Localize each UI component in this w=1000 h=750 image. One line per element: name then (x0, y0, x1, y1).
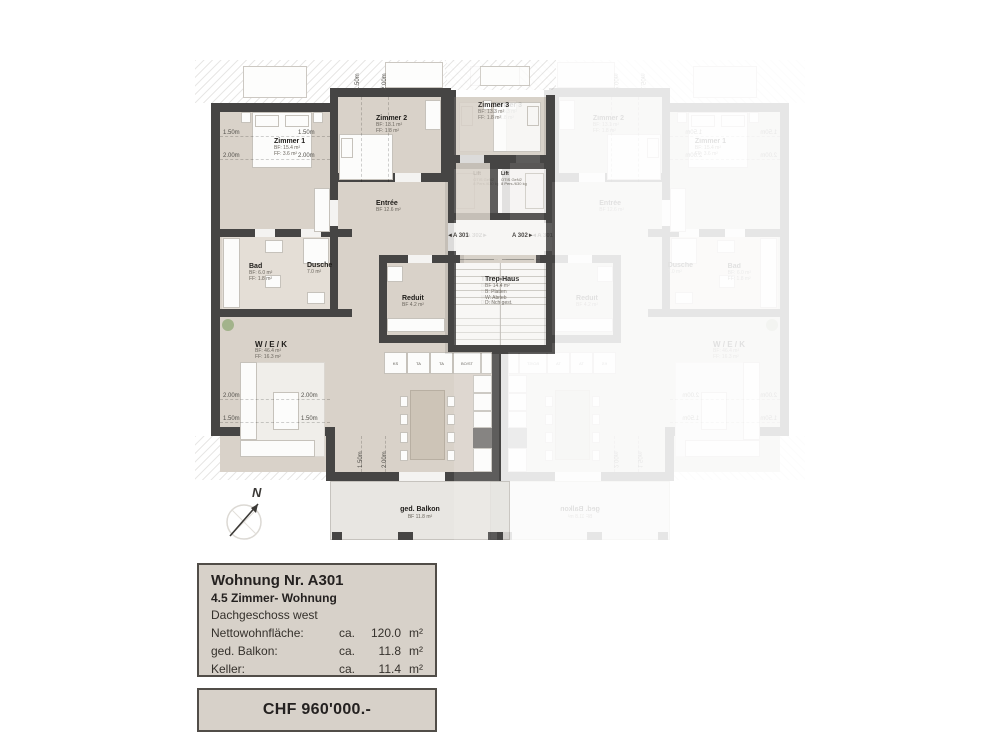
slope-line (670, 399, 780, 400)
nightstand (241, 112, 251, 123)
sink (717, 240, 735, 253)
slope-line (611, 97, 612, 182)
door-opening (255, 229, 275, 237)
roof-hatch (670, 436, 805, 480)
dim-label: 1.50m (639, 73, 645, 90)
kitchen-cabinet: KS (593, 352, 616, 374)
shelf (555, 318, 613, 332)
chair (400, 450, 408, 461)
balcony-label: ged. Balkon BF 11.8 m² (550, 506, 610, 520)
dining-table (555, 390, 590, 460)
kitchen-cabinet-label: KS (602, 361, 607, 366)
sink (307, 292, 325, 304)
dormer-window (480, 66, 530, 86)
room-label-reduit: Reduit BF 4.2 m² (402, 295, 424, 309)
wall (490, 213, 547, 220)
room-label-zimmer2: Zimmer 2 BF: 13.1 m² FF: 1.8 m² (376, 115, 407, 135)
dormer-window (693, 66, 757, 98)
room-name: Dusche (668, 262, 693, 270)
room-area: BF: 46.4 m² (713, 349, 745, 355)
unit-marker-a302: A 302► (512, 233, 534, 239)
sink (265, 240, 283, 253)
door-opening (579, 173, 605, 182)
apartment-a301-floorplan: KS TA TA BO/ST (195, 60, 556, 545)
info-unit: m² (401, 624, 423, 642)
kitchen-cabinet (473, 448, 492, 472)
wall (546, 95, 555, 354)
entry-threshold (460, 259, 494, 260)
slope-line (670, 422, 780, 423)
wardrobe (314, 188, 330, 232)
kitchen-cabinet: TA (430, 352, 453, 374)
wall (211, 237, 220, 317)
info-row: Nettowohnfläche: ca. 120.0 m² (211, 624, 423, 642)
room-label-trephaus: Trep-Haus BF 14.4 m² B: Platten W: Abrie… (485, 276, 519, 307)
nightstand (749, 112, 759, 123)
wall (379, 335, 448, 343)
room-area: BF 12.6 m² (376, 208, 401, 214)
chair (447, 450, 455, 461)
dim-label: 1.50m (298, 130, 315, 136)
bathtub (223, 238, 240, 308)
wall (490, 162, 547, 169)
dim-label: 1.50m (223, 416, 240, 422)
wall (552, 255, 621, 263)
room-area: BF 4.2 m² (576, 303, 598, 309)
room-label-dusche: Dusche 7.0 m² (668, 262, 693, 276)
room-area: FF: 1.8 m² (249, 277, 272, 283)
room-label-entree: Entrée BF 12.6 m² (599, 200, 624, 214)
door-opening (662, 200, 670, 226)
door-opening (460, 155, 484, 163)
pillow (341, 138, 353, 158)
room-area: BF: 6.0 m² (728, 271, 751, 277)
info-ca: ca. (339, 660, 363, 678)
kitchen-cabinet (473, 393, 492, 411)
info-row: Keller: ca. 11.4 m² (211, 660, 423, 678)
room-area: BF: 13.1 m² (593, 123, 624, 129)
room-label-reduit: Reduit BF 4.2 m² (576, 295, 598, 309)
wall (211, 103, 220, 237)
slope-line (388, 97, 389, 182)
kitchen-cabinet-label: TA (439, 361, 444, 366)
entry-threshold (502, 259, 534, 260)
sofa (743, 362, 760, 440)
room-label-entree: Entrée BF 12.6 m² (376, 200, 401, 214)
info-value: 11.4 (363, 660, 401, 678)
dim-label: 1.50m (682, 416, 699, 422)
room-label-dusche: Dusche 7.0 m² (307, 262, 332, 276)
bed (688, 112, 748, 168)
floor-bath (670, 237, 778, 309)
room-area: 7.0 m² (668, 270, 693, 276)
wall (213, 103, 334, 112)
balcony-pillar (488, 532, 503, 540)
nightstand (313, 112, 323, 123)
room-area: BF 11.8 m² (390, 514, 450, 520)
chair (447, 396, 455, 407)
room-area: FF: 3.6 m² (274, 152, 305, 158)
room-area: FF: 1.8 m² (376, 129, 407, 135)
kitchen-cabinet-label: TA (556, 361, 561, 366)
dim-label: 2.00m (612, 73, 618, 90)
lift-cab-inner (525, 173, 544, 209)
dim-label: 1.50m (760, 130, 777, 136)
price-text: CHF 960'000.- (263, 701, 371, 719)
room-label-wek: W / E / K BF: 46.4 m² FF: 16.3 m² (255, 340, 287, 361)
dim-label: 2.00m (382, 451, 388, 468)
price-box: CHF 960'000.- (197, 688, 437, 732)
wall (448, 90, 456, 354)
pillow (285, 115, 309, 127)
door-opening (568, 255, 592, 263)
toilet (719, 275, 735, 288)
wall (666, 103, 787, 112)
door-opening (408, 255, 432, 263)
kitchen-cabinet: BO/ST (453, 352, 481, 374)
dim-label: 1.50m (358, 451, 364, 468)
compass-n-label: N (252, 485, 262, 500)
dim-label: 2.00m (223, 393, 240, 399)
dim-label: 2.00m (382, 73, 388, 90)
pillow (527, 106, 539, 126)
compass: N (220, 482, 272, 546)
kitchen-cabinet-label: TA (579, 361, 584, 366)
info-ca: ca. (339, 642, 363, 660)
door-opening (395, 173, 421, 182)
shower (303, 238, 329, 264)
kitchen-appliance-dark (473, 428, 492, 448)
wall (648, 229, 789, 237)
coffee-table (273, 392, 299, 430)
wall (330, 88, 451, 97)
dining-table (410, 390, 445, 460)
room-name: Zimmer 1 (695, 138, 726, 146)
room-area: BF: 15.4 m² (695, 146, 726, 152)
room-name: Zimmer 2 (593, 115, 624, 123)
wall (549, 173, 662, 182)
room-name: Entrée (599, 200, 624, 208)
balcony-pillar (398, 532, 413, 540)
room-name: ged. Balkon (550, 506, 610, 514)
room-name: Bad (728, 263, 751, 271)
chair (447, 414, 455, 425)
appliance (387, 266, 403, 282)
sofa (685, 440, 760, 457)
room-area: FF: 1.8 m² (478, 116, 509, 122)
rug (675, 362, 760, 457)
room-label-bad: Bad BF: 6.0 m² FF: 1.8 m² (728, 263, 751, 283)
room-label-wek: W / E / K BF: 46.4 m² FF: 16.3 m² (713, 340, 745, 361)
wall (379, 255, 387, 343)
kitchen-cabinet (473, 411, 492, 428)
balcony-pillar (587, 532, 602, 540)
balcony-label: ged. Balkon BF 11.8 m² (390, 506, 450, 520)
sink (675, 292, 693, 304)
dim-label: 2.00m (685, 153, 702, 159)
chair (400, 396, 408, 407)
room-area: FF: 16.3 m² (713, 355, 745, 361)
slope-line (220, 399, 330, 400)
room-area: BF 4.2 m² (402, 303, 424, 309)
shelf (387, 318, 445, 332)
dim-label: 2.00m (612, 451, 618, 468)
room-area: FF: 1.8 m² (593, 129, 624, 135)
chair (447, 432, 455, 443)
dim-label: 2.00m (760, 393, 777, 399)
wall (552, 335, 621, 343)
dim-label: 1.50m (685, 130, 702, 136)
room-area: FF: 3.6 m² (695, 152, 726, 158)
dormer-window (557, 62, 615, 88)
dim-label: 2.00m (760, 153, 777, 159)
door-opening (330, 200, 338, 226)
bathtub (760, 238, 777, 308)
slope-line (220, 422, 330, 423)
room-label-lift: Lift OTIS GeN2 8 Pers./630 kg (501, 172, 527, 187)
slope-line (638, 436, 639, 472)
wall (440, 255, 460, 263)
slope-line (638, 97, 639, 182)
wall (780, 103, 789, 237)
wardrobe (425, 100, 441, 130)
room-label-zimmer1: Zimmer 1 BF: 15.4 m² FF: 3.6 m² (695, 138, 726, 158)
room-name: Reduit (576, 295, 598, 303)
info-label: ged. Balkon: (211, 642, 339, 660)
info-label: Keller: (211, 660, 339, 678)
wall (441, 97, 448, 182)
pillow (721, 115, 745, 127)
chair (592, 396, 600, 407)
wall (780, 317, 789, 436)
chair (400, 432, 408, 443)
room-name: ged. Balkon (390, 506, 450, 514)
dim-label: 1.50m (636, 451, 642, 468)
slope-line (614, 436, 615, 472)
info-unit: m² (401, 642, 423, 660)
stair-treads (456, 312, 546, 345)
coffee-table (701, 392, 727, 430)
pillow (691, 115, 715, 127)
slope-line (220, 159, 330, 160)
sofa (240, 440, 315, 457)
room-note: D: Nch gest. (485, 301, 519, 307)
sofa (240, 362, 257, 440)
shower (671, 238, 697, 264)
room-label-bad: Bad BF: 6.0 m² FF: 1.8 m² (249, 263, 272, 283)
plant (766, 319, 778, 331)
apartment-floor: Dachgeschoss west (211, 606, 423, 624)
dim-label: 2.00m (682, 393, 699, 399)
wall (648, 309, 789, 317)
room-area: FF: 1.8 m² (728, 277, 751, 283)
wall (211, 317, 220, 436)
balcony-door (555, 472, 601, 482)
kitchen-cabinet (473, 375, 492, 393)
chair (592, 432, 600, 443)
kitchen-cabinet-label: BO/ST (461, 361, 473, 366)
slope-line (670, 159, 780, 160)
kitchen-cabinet: KS (384, 352, 407, 374)
apartment-subtitle: 4.5 Zimmer- Wohnung (211, 590, 423, 606)
dormer-window (385, 62, 443, 88)
room-label-zimmer1: Zimmer 1 BF: 15.4 m² FF: 3.6 m² (274, 138, 305, 158)
room-area: FF: 16.3 m² (255, 355, 287, 361)
wardrobe (670, 188, 686, 232)
chair (400, 414, 408, 425)
room-label-zimmer2: Zimmer 2 BF: 13.1 m² FF: 1.8 m² (593, 115, 624, 135)
wall (662, 229, 670, 317)
info-unit: m² (401, 660, 423, 678)
room-area: BF 12.6 m² (599, 208, 624, 214)
page: KS TA TA BO/ST (0, 0, 1000, 750)
kitchen-cabinet-label: KS (393, 361, 398, 366)
kitchen-cabinet (481, 352, 492, 374)
info-value: 120.0 (363, 624, 401, 642)
balcony-pillar (658, 532, 668, 540)
dim-label: 2.00m (301, 393, 318, 399)
kitchen-cabinet-label: TA (416, 361, 421, 366)
lift-spec: 8 Pers./630 kg (501, 182, 527, 187)
wall (667, 427, 789, 436)
wall (613, 255, 621, 343)
nightstand (677, 112, 687, 123)
dormer-window (243, 66, 307, 98)
dim-label: 1.50m (760, 416, 777, 422)
appliance (597, 266, 613, 282)
kitchen-cabinet: TA (407, 352, 430, 374)
info-label: Nettowohnfläche: (211, 624, 339, 642)
roof-hatch (553, 60, 805, 103)
info-row: ged. Balkon: ca. 11.8 m² (211, 642, 423, 660)
chair (592, 450, 600, 461)
wall (549, 88, 670, 97)
apartment-title: Wohnung Nr. A301 (211, 571, 423, 590)
pillow (647, 138, 659, 158)
plant (222, 319, 234, 331)
room-name: W / E / K (713, 340, 745, 349)
dim-label: 1.50m (355, 73, 361, 90)
room-label-zimmer3: Zimmer 3 BF: 13.3 m² FF: 1.8 m² (478, 102, 509, 122)
room-area: BF 11.8 m² (550, 514, 610, 520)
bed (607, 134, 661, 180)
door-opening (679, 229, 699, 237)
balcony-pillar (332, 532, 342, 540)
wall (492, 352, 501, 481)
dim-label: 2.00m (223, 153, 240, 159)
slope-line (220, 136, 330, 137)
wall (490, 162, 498, 220)
dim-label: 1.50m (301, 416, 318, 422)
chair (592, 414, 600, 425)
unit-marker-a301: ◄A 301 (447, 233, 469, 239)
apartment-info-box: Wohnung Nr. A301 4.5 Zimmer- Wohnung Dac… (197, 563, 437, 677)
wall (665, 427, 674, 481)
kitchen-cabinet: TA (570, 352, 593, 374)
pillow (255, 115, 279, 127)
wall (780, 237, 789, 317)
slope-line (361, 97, 362, 182)
info-ca: ca. (339, 624, 363, 642)
wardrobe (559, 100, 575, 130)
info-value: 11.8 (363, 642, 401, 660)
door-opening (725, 229, 745, 237)
wall (662, 88, 670, 229)
dim-label: 1.50m (223, 130, 240, 136)
room-area: 7.0 m² (307, 270, 332, 276)
slope-line (670, 136, 780, 137)
wall (536, 255, 555, 263)
